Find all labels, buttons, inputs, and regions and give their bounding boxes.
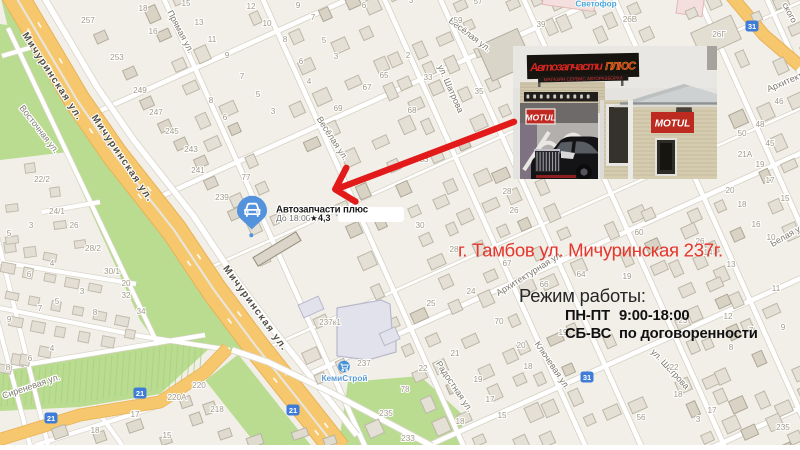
svg-text:8: 8 [6, 363, 11, 372]
svg-text:9: 9 [225, 51, 230, 60]
svg-text:26В: 26В [623, 15, 638, 24]
svg-text:10: 10 [262, 19, 272, 28]
svg-text:Автозапчасти: Автозапчасти [529, 61, 603, 75]
svg-text:22/2: 22/2 [34, 175, 50, 184]
svg-text:39: 39 [536, 20, 546, 29]
svg-text:5: 5 [55, 297, 60, 306]
svg-text:253: 253 [110, 53, 124, 62]
svg-text:11: 11 [208, 35, 217, 44]
svg-text:17: 17 [765, 176, 775, 185]
svg-text:245: 245 [165, 127, 179, 136]
svg-text:Светофор: Светофор [575, 0, 616, 9]
svg-text:20: 20 [121, 279, 131, 288]
svg-text:247: 247 [149, 108, 163, 117]
svg-text:18: 18 [138, 4, 148, 13]
svg-text:67: 67 [362, 83, 372, 92]
svg-text:5: 5 [322, 36, 327, 45]
svg-text:8: 8 [283, 35, 288, 44]
svg-text:68: 68 [407, 106, 417, 115]
svg-text:65: 65 [379, 71, 389, 80]
svg-text:19: 19 [473, 375, 483, 384]
svg-text:67: 67 [502, 259, 512, 268]
svg-text:30: 30 [415, 221, 425, 230]
svg-text:15: 15 [162, 431, 172, 440]
svg-text:21: 21 [136, 389, 144, 398]
svg-text:15: 15 [780, 194, 790, 203]
svg-text:16: 16 [148, 27, 158, 36]
svg-text:8: 8 [93, 308, 98, 317]
svg-text:24: 24 [466, 287, 476, 296]
svg-text:6: 6 [27, 270, 32, 279]
svg-text:56: 56 [636, 413, 646, 422]
svg-text:MOTUL: MOTUL [655, 119, 691, 130]
svg-text:6: 6 [299, 57, 304, 66]
svg-text:77: 77 [241, 173, 251, 182]
svg-text:5: 5 [256, 90, 261, 99]
svg-text:28: 28 [502, 187, 512, 196]
svg-text:34: 34 [136, 307, 146, 316]
svg-text:21А: 21А [738, 150, 753, 159]
svg-text:9: 9 [7, 315, 12, 324]
svg-text:6: 6 [362, 1, 367, 10]
svg-text:26Г: 26Г [712, 30, 726, 39]
svg-text:3: 3 [80, 287, 85, 296]
svg-text:17: 17 [485, 395, 495, 404]
svg-text:18: 18 [673, 390, 683, 399]
svg-text:48: 48 [755, 120, 765, 129]
svg-text:32: 32 [121, 291, 131, 300]
svg-text:35: 35 [474, 87, 484, 96]
svg-text:241: 241 [191, 166, 205, 175]
svg-text:21: 21 [289, 406, 297, 415]
svg-text:26: 26 [69, 221, 79, 230]
svg-text:57: 57 [473, 0, 483, 6]
svg-text:8: 8 [729, 343, 734, 352]
svg-text:18: 18 [523, 362, 533, 371]
svg-text:33: 33 [423, 73, 433, 82]
svg-text:12: 12 [246, 2, 256, 11]
svg-text:ПЛЮС: ПЛЮС [605, 60, 637, 73]
svg-text:15: 15 [181, 0, 191, 8]
svg-text:22: 22 [418, 364, 428, 373]
svg-text:18: 18 [455, 417, 465, 426]
svg-text:235: 235 [776, 423, 790, 432]
svg-text:26: 26 [509, 206, 519, 215]
svg-text:15: 15 [497, 411, 507, 420]
svg-text:19: 19 [755, 160, 765, 169]
svg-text:21: 21 [450, 349, 460, 358]
svg-text:3: 3 [29, 221, 34, 230]
svg-text:5: 5 [7, 229, 12, 238]
svg-text:220А: 220А [167, 393, 187, 402]
svg-text:237к1: 237к1 [319, 318, 341, 327]
svg-text:237: 237 [357, 359, 371, 368]
svg-text:9: 9 [781, 323, 786, 332]
svg-text:218: 218 [210, 405, 224, 414]
svg-text:10: 10 [766, 233, 776, 242]
svg-text:3: 3 [334, 52, 339, 61]
svg-text:243: 243 [184, 145, 198, 154]
svg-text:7: 7 [38, 304, 43, 313]
svg-text:46: 46 [774, 97, 784, 106]
svg-text:60: 60 [634, 228, 644, 237]
svg-text:220: 220 [192, 381, 206, 390]
svg-text:Режим работы:: Режим работы: [519, 285, 646, 306]
svg-text:4,3: 4,3 [318, 213, 331, 223]
svg-text:ПН-ПТ9:00-18:00: ПН-ПТ9:00-18:00 [565, 308, 689, 324]
svg-text:3: 3 [271, 107, 276, 116]
svg-text:16: 16 [751, 220, 761, 229]
svg-text:9: 9 [296, 1, 301, 10]
svg-text:257: 257 [81, 16, 95, 25]
svg-text:13: 13 [194, 18, 204, 27]
svg-text:28/2: 28/2 [85, 244, 101, 253]
svg-text:17: 17 [130, 410, 140, 419]
svg-text:11: 11 [772, 284, 781, 293]
svg-text:21: 21 [47, 414, 55, 423]
svg-text:24/1: 24/1 [49, 207, 65, 216]
svg-text:78: 78 [400, 385, 410, 394]
svg-text:7: 7 [240, 72, 245, 81]
svg-text:50: 50 [737, 129, 747, 138]
svg-text:30/1: 30/1 [104, 267, 120, 276]
svg-text:64: 64 [576, 270, 586, 279]
svg-text:20: 20 [516, 341, 526, 350]
svg-text:MOTUL: MOTUL [525, 113, 555, 123]
svg-text:3: 3 [409, 0, 414, 5]
svg-text:г. Тамбов ул. Мичуринская 237г: г. Тамбов ул. Мичуринская 237г. [458, 239, 723, 260]
svg-text:СБ-ВСпо договоренности: СБ-ВСпо договоренности [565, 326, 758, 342]
svg-text:45: 45 [765, 139, 775, 148]
svg-text:13: 13 [726, 260, 736, 269]
svg-text:18: 18 [737, 200, 747, 209]
svg-text:69: 69 [333, 104, 343, 113]
svg-text:235: 235 [379, 409, 393, 418]
svg-text:25: 25 [426, 299, 436, 308]
svg-text:4: 4 [50, 344, 55, 353]
svg-text:4: 4 [50, 259, 55, 268]
svg-text:239: 239 [215, 193, 229, 202]
svg-text:КемиСтрой: КемиСтрой [321, 373, 367, 383]
svg-text:4: 4 [307, 77, 312, 86]
svg-text:31: 31 [748, 22, 756, 31]
svg-text:7: 7 [311, 13, 316, 22]
svg-text:59: 59 [453, 16, 463, 25]
svg-text:До 18:00: До 18:00 [276, 213, 311, 223]
svg-text:249: 249 [133, 86, 147, 95]
svg-text:3: 3 [696, 415, 701, 424]
svg-text:70: 70 [494, 317, 504, 326]
svg-text:31: 31 [583, 373, 591, 382]
svg-text:18: 18 [90, 426, 100, 435]
svg-text:22: 22 [669, 363, 679, 372]
svg-text:6: 6 [223, 113, 228, 122]
svg-text:233: 233 [401, 434, 415, 443]
svg-text:6: 6 [28, 354, 33, 363]
svg-text:2: 2 [406, 51, 411, 60]
svg-text:12: 12 [723, 312, 733, 321]
svg-text:8: 8 [209, 96, 214, 105]
svg-text:★: ★ [310, 213, 318, 223]
svg-text:19: 19 [622, 272, 632, 281]
svg-text:17: 17 [707, 406, 717, 415]
svg-text:20: 20 [725, 186, 735, 195]
